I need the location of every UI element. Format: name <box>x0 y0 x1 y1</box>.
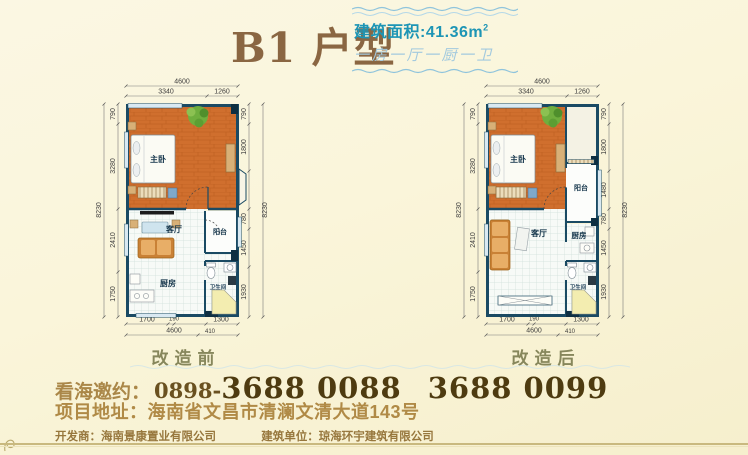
building-area-text: 建筑面积:41.36m <box>354 24 483 41</box>
phone-number-2: 3688 0099 <box>428 371 609 405</box>
nightstand <box>488 122 496 130</box>
dim-right-seg: 1450 <box>601 240 608 256</box>
wavy-line-top-icon <box>352 5 518 17</box>
kitchen-label: 厨房 <box>572 230 587 240</box>
dim-left-seg: 2410 <box>110 232 117 248</box>
project-address: 项目地址：海南省文昌市清澜文清大道143号 <box>55 398 420 424</box>
tv <box>140 211 174 215</box>
kitchen-label: 厨房 <box>160 278 176 288</box>
dim-left-seg: 2410 <box>470 232 477 248</box>
dim-left-seg: 790 <box>470 108 477 120</box>
bottom-divider-light <box>0 446 748 447</box>
dim-left-seg: 1750 <box>470 286 477 302</box>
dim-left-seg: 1750 <box>110 286 117 302</box>
balcony-floor <box>566 163 596 222</box>
dim-right-total: 8230 <box>262 202 269 218</box>
dim-bottom-seg: 1300 <box>213 317 229 324</box>
side-table <box>130 220 138 228</box>
toilet-icon <box>568 263 577 279</box>
coffee-table <box>142 222 168 233</box>
appliance <box>168 188 177 198</box>
balcony-label: 阳台 <box>574 183 588 192</box>
dim-bottom-seg: 1300 <box>573 317 589 324</box>
wardrobe <box>496 187 526 198</box>
sofa <box>490 220 510 270</box>
dim-right-total: 8230 <box>622 202 629 218</box>
area-info-box: 建筑面积:41.36m2 一房一厅一厨一卫 <box>352 5 522 76</box>
floor-plan-after: 4600 3340 1260 8230 790 3280 2410 1750 7… <box>438 72 648 357</box>
dim-bottom-seg: 190 <box>529 317 540 323</box>
dim-right-seg: 1930 <box>241 284 248 300</box>
dim-left-seg: 3280 <box>470 158 477 174</box>
dim-bottom-seg: 1700 <box>499 317 515 324</box>
floor-plan-before-svg: 4600 3340 1260 8230 790 3280 2410 1750 7… <box>78 72 288 357</box>
washing-machine <box>588 276 596 285</box>
dresser <box>556 144 565 172</box>
dim-right-seg: 790 <box>601 108 608 120</box>
dim-left-seg: 790 <box>110 108 117 120</box>
dresser <box>226 144 235 172</box>
sofa <box>138 238 174 258</box>
sink-icon <box>224 263 236 272</box>
toilet-icon <box>207 263 216 279</box>
dim-right-seg: 1930 <box>601 284 608 300</box>
area-superscript: 2 <box>483 23 489 33</box>
building-area-label: 建筑面积:41.36m2 <box>354 18 522 42</box>
bottom-divider <box>0 443 748 445</box>
closet-floor <box>566 106 596 161</box>
nightstand <box>488 186 496 194</box>
dim-right-seg: 1800 <box>241 139 248 155</box>
dim-top-seg: 3340 <box>158 89 174 96</box>
living-label: 客厅 <box>165 224 182 234</box>
dim-top-seg: 1260 <box>214 89 230 96</box>
wardrobe <box>138 187 166 198</box>
washing-machine <box>228 276 236 285</box>
dim-bottom-total: 4600 <box>166 328 182 335</box>
appliance <box>528 188 537 198</box>
dim-top-total: 4600 <box>174 79 190 86</box>
bedroom-label: 主卧 <box>510 154 526 164</box>
dim-right-seg: 780 <box>601 213 608 225</box>
poster-canvas: B1 户型 建筑面积:41.36m2 一房一厅一厨一卫 <box>0 0 748 455</box>
developer-text: 开发商：海南景康置业有限公司 <box>55 431 216 443</box>
living-label: 客厅 <box>530 228 547 238</box>
dim-left-total: 8230 <box>96 202 103 218</box>
dim-right-seg: 1480 <box>601 182 608 198</box>
balcony-label: 阳台 <box>213 227 227 236</box>
dim-right-seg: 1450 <box>241 240 248 256</box>
dim-top-total: 4600 <box>534 79 550 86</box>
dim-bottom-sub: 410 <box>205 329 216 335</box>
layout-description: 一房一厅一厨一卫 <box>354 44 522 65</box>
dim-left-seg: 3280 <box>110 158 117 174</box>
floor-plan-after-svg: 4600 3340 1260 8230 790 3280 2410 1750 7… <box>438 72 648 357</box>
bathroom-label: 卫生间 <box>570 283 587 291</box>
company-line: 开发商：海南景康置业有限公司 建筑单位：琼海环宇建筑有限公司 <box>55 428 434 444</box>
mid-wavy-line-icon <box>130 363 630 371</box>
dim-left-total: 8230 <box>456 202 463 218</box>
dim-top-seg: 3340 <box>518 89 534 96</box>
dim-bottom-total: 4600 <box>526 328 542 335</box>
nightstand <box>128 186 136 194</box>
dim-right-seg: 1800 <box>601 139 608 155</box>
dim-right-seg: 780 <box>241 213 248 225</box>
floor-plan-before: 4600 3340 1260 8230 790 3280 2410 1750 7… <box>78 72 288 357</box>
dim-top-seg: 1260 <box>574 89 590 96</box>
bay-window <box>239 169 246 205</box>
bench <box>498 296 552 305</box>
sink-icon <box>584 263 596 272</box>
nightstand <box>128 122 136 130</box>
builder-text: 建筑单位：琼海环宇建筑有限公司 <box>261 431 434 443</box>
dim-bottom-sub: 410 <box>565 329 576 335</box>
bedroom-label: 主卧 <box>150 154 166 164</box>
bathroom-label: 卫生间 <box>210 283 227 291</box>
dim-right-seg: 790 <box>241 108 248 120</box>
